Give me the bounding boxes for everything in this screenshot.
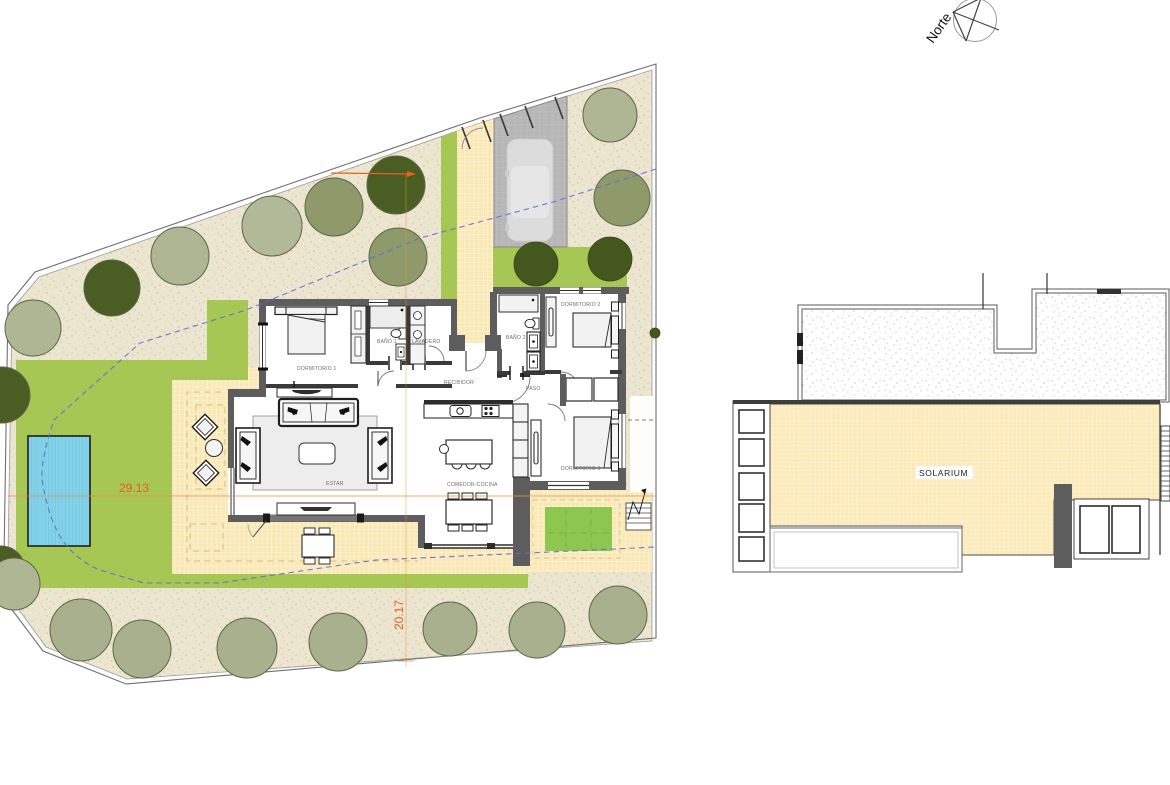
svg-text:LAVADERO: LAVADERO	[412, 339, 441, 345]
svg-text:29.13: 29.13	[119, 481, 149, 495]
svg-text:PASO: PASO	[526, 386, 541, 392]
svg-text:BAÑO 2: BAÑO 2	[506, 334, 526, 341]
svg-text:SOLARIUM: SOLARIUM	[919, 468, 968, 478]
svg-text:DORMITORIO 2: DORMITORIO 2	[561, 302, 601, 308]
svg-text:BAÑO 1: BAÑO 1	[377, 338, 397, 345]
svg-text:DORMITORIO 1: DORMITORIO 1	[297, 366, 337, 372]
svg-text:ESTAR: ESTAR	[326, 481, 344, 487]
svg-text:COMEDOR-COCINA: COMEDOR-COCINA	[447, 482, 498, 488]
svg-text:20.17: 20.17	[392, 600, 406, 630]
svg-text:DORMITORIO 3: DORMITORIO 3	[561, 466, 601, 472]
svg-text:RECIBIDOR: RECIBIDOR	[444, 380, 474, 386]
